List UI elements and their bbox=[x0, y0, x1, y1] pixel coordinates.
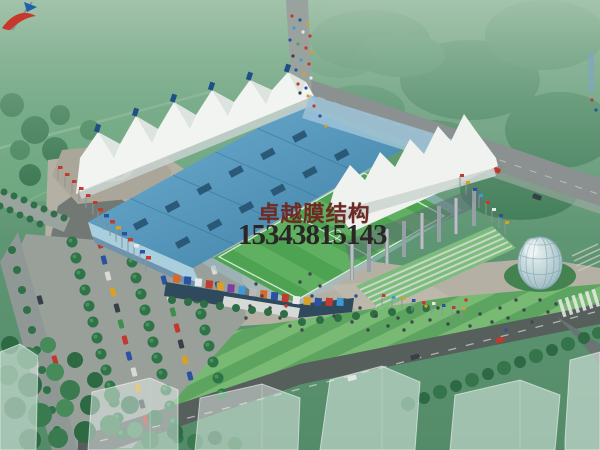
stadium-rendering bbox=[0, 0, 600, 450]
rendering-canvas: 卓越膜结构 15343815143 bbox=[0, 0, 600, 450]
